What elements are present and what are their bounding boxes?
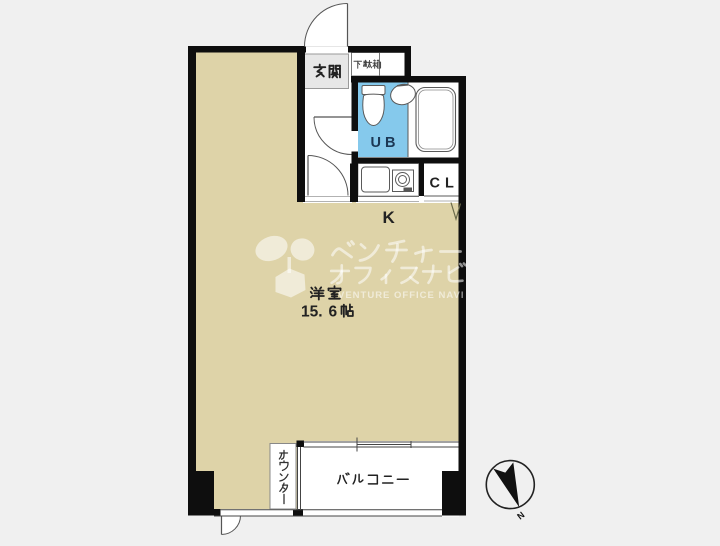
svg-text:K: K xyxy=(383,208,396,227)
svg-text:15.: 15. xyxy=(301,304,323,321)
svg-text:CL: CL xyxy=(430,176,459,192)
svg-text:VENTURE OFFICE NAVI: VENTURE OFFICE NAVI xyxy=(338,290,465,301)
svg-text:6: 6 xyxy=(329,304,338,321)
svg-text:UB: UB xyxy=(371,135,400,151)
